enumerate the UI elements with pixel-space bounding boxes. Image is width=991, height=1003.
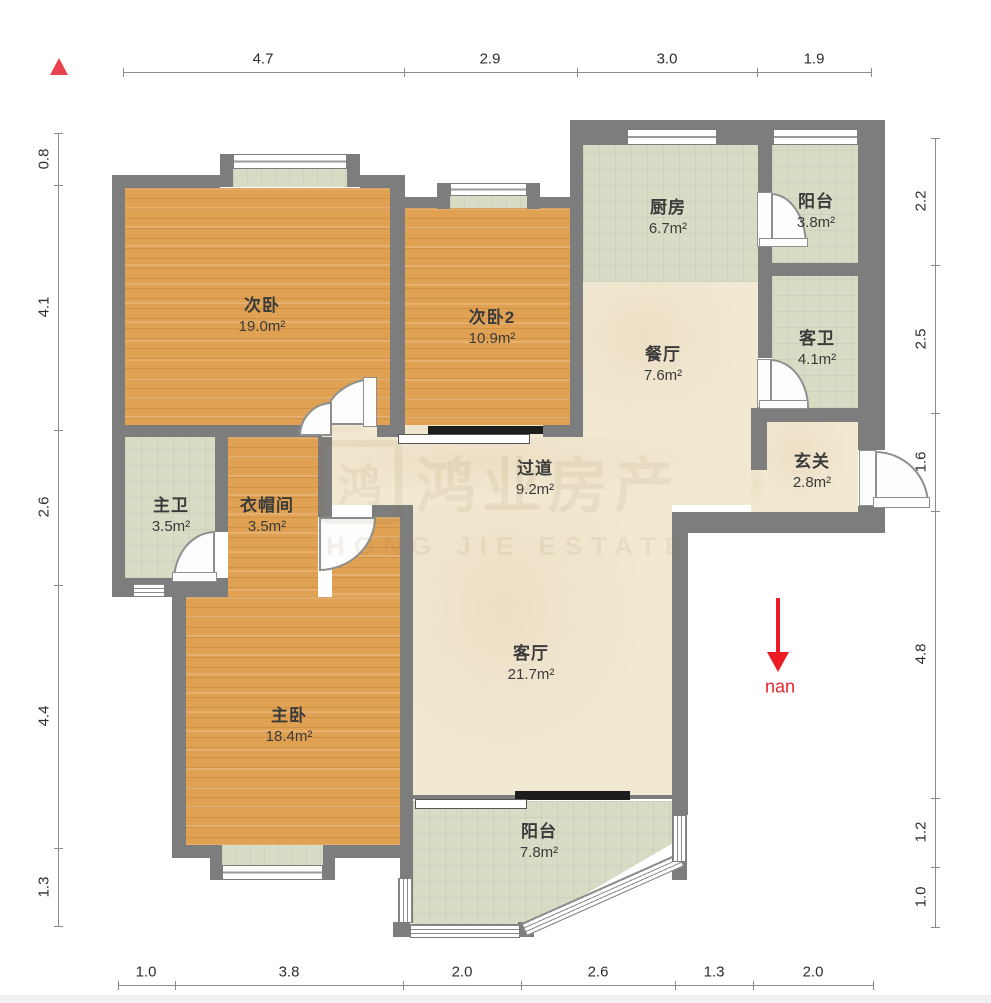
dim-bottom-1: 1.0 xyxy=(136,964,157,981)
dim-tick xyxy=(931,867,940,868)
wall xyxy=(543,425,583,437)
dim-bottom-4: 2.6 xyxy=(588,964,609,981)
door-sill xyxy=(759,400,808,409)
room-label-dining: 餐厅 7.6m² xyxy=(644,340,682,384)
window xyxy=(222,865,323,880)
room-label-kitchen: 厨房 6.7m² xyxy=(649,193,687,237)
wall xyxy=(390,175,405,437)
wall xyxy=(717,129,773,145)
wall xyxy=(672,533,688,797)
wall xyxy=(758,145,772,192)
dim-tick xyxy=(931,413,940,414)
wall-bay-post xyxy=(347,154,360,187)
south-arrow-head-icon xyxy=(767,652,789,672)
dim-left-5: 1.3 xyxy=(36,877,53,898)
dim-right-6: 1.0 xyxy=(913,887,930,908)
dim-line-top xyxy=(123,72,871,73)
room-label-guest-bath: 客卫 4.1m² xyxy=(798,324,836,368)
room-label-balcony-top: 阳台 3.8m² xyxy=(797,187,835,231)
south-arrow-icon xyxy=(776,598,780,654)
window-balcony-left xyxy=(398,878,413,923)
dim-tick xyxy=(871,68,872,77)
window xyxy=(773,129,858,145)
window xyxy=(233,154,347,169)
wall xyxy=(672,512,885,533)
dim-tick xyxy=(931,138,940,139)
floorplan-canvas: 次卧 19.0m² 次卧2 10.9m² 厨房 6.7m² 阳台 3.8m² 餐… xyxy=(0,0,991,1003)
dim-tick xyxy=(931,798,940,799)
wall xyxy=(172,845,210,858)
window-sill xyxy=(450,196,527,208)
wall xyxy=(758,263,870,276)
room-label-master-bath: 主卫 3.5m² xyxy=(152,491,190,535)
dim-tick xyxy=(54,585,63,586)
wall-right-outer xyxy=(858,120,885,450)
window-sill xyxy=(233,169,347,187)
dim-bottom-2: 3.8 xyxy=(279,964,300,981)
window-balcony-bottom xyxy=(410,924,520,938)
dim-tick xyxy=(873,981,874,990)
south-arrow-label: nan xyxy=(765,677,795,698)
wall xyxy=(570,129,627,145)
wall-bay-post xyxy=(527,183,540,209)
footer-strip xyxy=(0,995,991,1003)
dim-tick xyxy=(521,981,522,990)
wall xyxy=(672,797,688,815)
wall xyxy=(172,578,186,858)
wall-bay-post xyxy=(210,845,222,880)
door-leaf xyxy=(363,377,377,427)
room-label-ci-bedroom: 次卧 19.0m² xyxy=(239,291,286,335)
sliding-door-light xyxy=(398,434,530,444)
wall xyxy=(540,197,573,208)
dim-top-2: 2.9 xyxy=(480,51,501,68)
dim-tick xyxy=(931,927,940,928)
wall xyxy=(402,197,437,208)
dim-bottom-6: 2.0 xyxy=(803,964,824,981)
wall xyxy=(400,505,413,797)
door-sill xyxy=(759,238,808,247)
dim-tick xyxy=(54,848,63,849)
wall xyxy=(377,425,390,437)
dim-right-1: 2.2 xyxy=(913,191,930,212)
dim-tick xyxy=(577,68,578,77)
dim-tick xyxy=(403,981,404,990)
window xyxy=(450,183,527,196)
wall xyxy=(400,797,413,878)
sliding-door-light xyxy=(415,799,527,809)
wall xyxy=(112,175,125,597)
wall-bay-post xyxy=(323,845,335,880)
dim-bottom-3: 2.0 xyxy=(452,964,473,981)
wall xyxy=(112,175,220,188)
wall xyxy=(318,437,332,517)
wall xyxy=(112,425,322,437)
wall xyxy=(751,422,767,470)
sliding-door-dark xyxy=(515,791,630,800)
dim-tick xyxy=(175,981,176,990)
window-small-bath xyxy=(133,583,165,597)
dim-tick xyxy=(404,68,405,77)
wall xyxy=(758,276,772,358)
wall xyxy=(215,437,228,532)
dim-top-4: 1.9 xyxy=(804,51,825,68)
floor-entry-neck xyxy=(751,470,768,512)
dim-line-right xyxy=(935,138,936,927)
door-sill xyxy=(172,572,217,582)
dim-tick xyxy=(54,185,63,186)
room-label-master-bedroom: 主卧 18.4m² xyxy=(266,701,313,745)
dim-tick xyxy=(931,265,940,266)
wall-bay-post xyxy=(220,154,233,187)
dim-tick xyxy=(757,68,758,77)
dim-top-1: 4.7 xyxy=(253,51,274,68)
wall xyxy=(570,120,858,129)
dim-left-4: 4.4 xyxy=(36,706,53,727)
dim-tick xyxy=(675,981,676,990)
dim-line-left xyxy=(58,133,59,926)
room-label-entry: 玄关 2.8m² xyxy=(793,447,831,491)
wall xyxy=(751,408,870,422)
sliding-door-dark xyxy=(428,426,543,434)
dim-tick xyxy=(54,926,63,927)
room-label-cloakroom: 衣帽间 3.5m² xyxy=(240,491,294,535)
dim-tick xyxy=(54,133,63,134)
dim-right-3: 1.6 xyxy=(913,452,930,473)
dim-right-4: 4.8 xyxy=(913,644,930,665)
room-label-ci-bedroom2: 次卧2 10.9m² xyxy=(469,303,516,347)
dim-tick xyxy=(123,68,124,77)
dim-tick xyxy=(753,981,754,990)
wall xyxy=(570,120,583,437)
dim-top-3: 3.0 xyxy=(657,51,678,68)
wall-bay-post xyxy=(437,183,450,209)
window xyxy=(627,129,717,145)
room-label-living: 客厅 21.7m² xyxy=(508,639,555,683)
door-sill xyxy=(873,497,930,508)
dim-left-2: 4.1 xyxy=(36,297,53,318)
dim-left-1: 0.8 xyxy=(36,149,53,170)
dim-tick xyxy=(54,430,63,431)
dim-tick xyxy=(118,981,119,990)
room-label-hallway: 过道 9.2m² xyxy=(516,454,554,498)
dim-right-5: 1.2 xyxy=(913,822,930,843)
dim-bottom-5: 1.3 xyxy=(704,964,725,981)
dim-tick xyxy=(931,511,940,512)
dim-right-2: 2.5 xyxy=(913,329,930,350)
window-balcony-right xyxy=(672,815,687,862)
dim-line-bottom xyxy=(118,985,873,986)
dim-left-3: 2.6 xyxy=(36,497,53,518)
wall-corner xyxy=(393,922,410,937)
window-sill xyxy=(222,845,323,865)
north-triangle-icon xyxy=(50,58,68,75)
room-label-balcony-bottom: 阳台 7.8m² xyxy=(520,817,558,861)
